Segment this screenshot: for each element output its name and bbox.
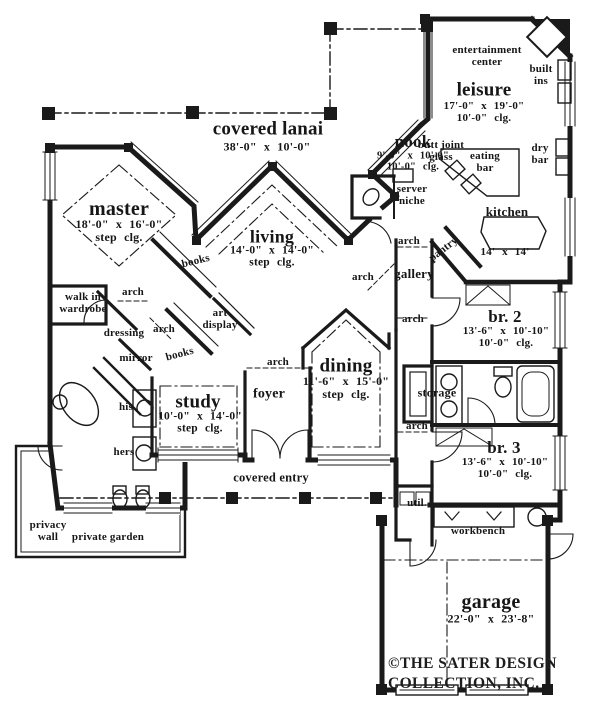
br3-closet: [436, 428, 492, 446]
floor-plan-drawing: [0, 0, 600, 721]
eating-bar-counter: [441, 149, 519, 196]
sink: [441, 374, 457, 390]
kitchen-island: [481, 217, 546, 249]
copyright-line-1: ©THE SATER DESIGN: [388, 654, 557, 674]
door-arcs: [38, 222, 573, 566]
copyright-notice: ©THE SATER DESIGN COLLECTION, INC.: [388, 654, 557, 694]
exterior-walls: [50, 19, 570, 690]
bath2-fixtures: [436, 366, 554, 424]
washer: [400, 492, 414, 505]
workbench-counter: [434, 507, 514, 527]
sink: [441, 401, 457, 417]
br2-closet: [466, 285, 510, 305]
master-bath-fixtures: [52, 358, 156, 508]
copyright-line-2: COLLECTION, INC.: [388, 674, 557, 694]
server-niche-shelf: [393, 169, 413, 182]
toilet: [360, 186, 382, 209]
toilet: [495, 377, 511, 397]
columns: [42, 14, 553, 695]
bathtub: [517, 366, 554, 422]
bidet: [136, 490, 150, 508]
bathtub: [52, 375, 107, 433]
floor-plan-page: covered lanai38'-0" x 10'-0"butt joint g…: [0, 0, 600, 721]
toilet: [113, 490, 127, 508]
